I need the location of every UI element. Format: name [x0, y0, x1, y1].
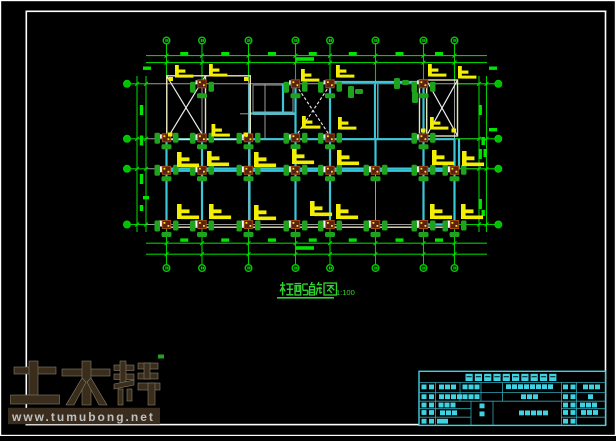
svg-text:1:100: 1:100: [336, 288, 355, 297]
svg-text:www.tumubong.net: www.tumubong.net: [11, 410, 155, 424]
